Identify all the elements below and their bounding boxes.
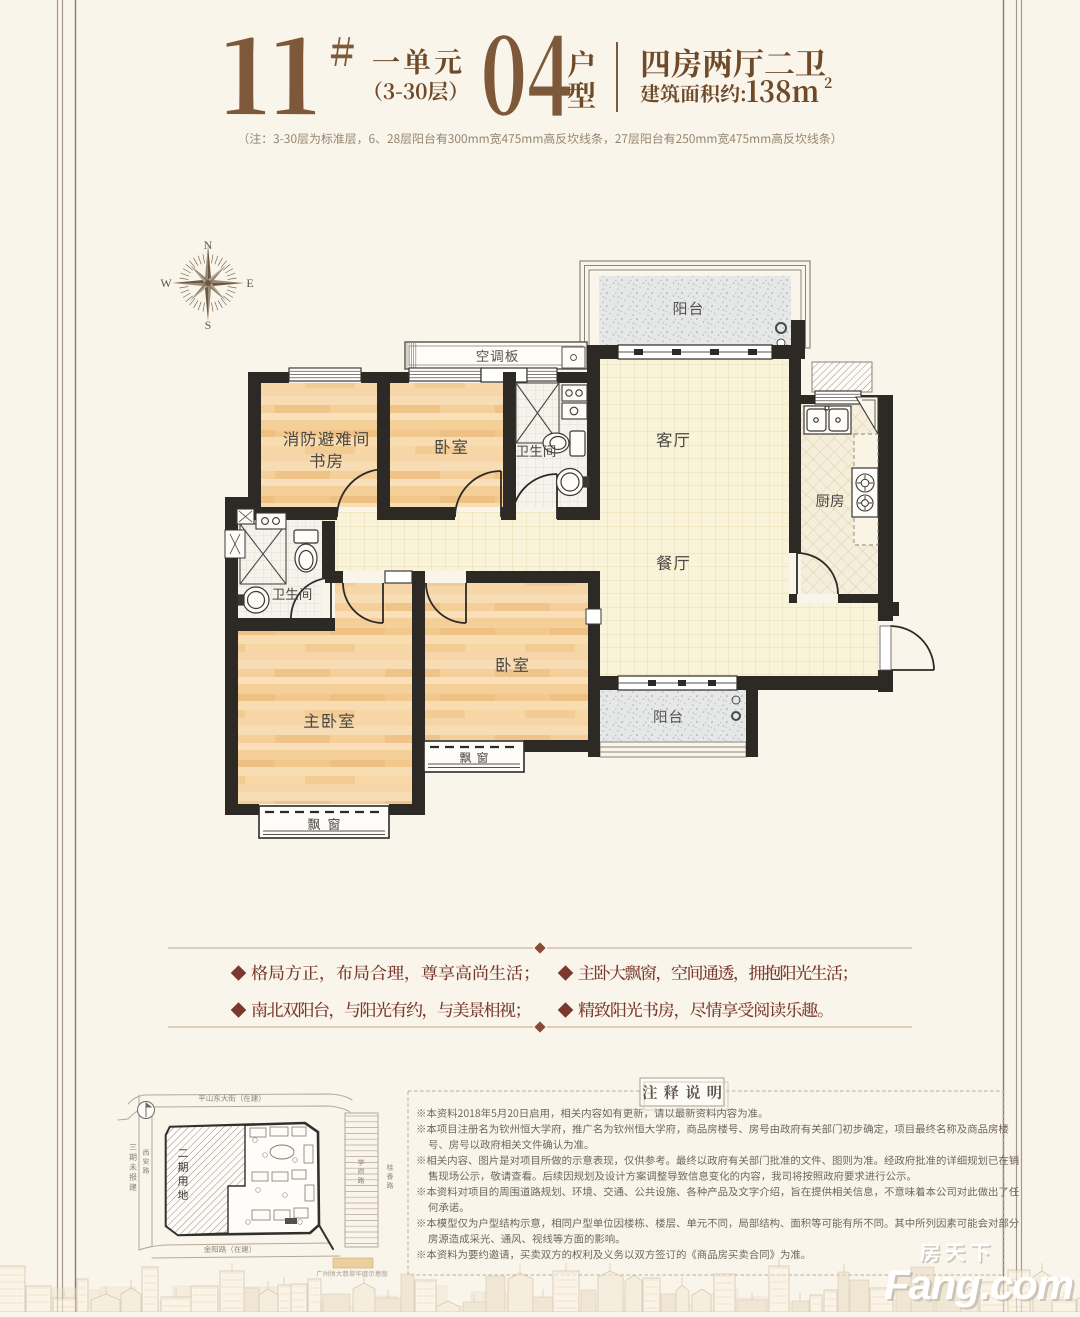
svg-text:N: N (204, 238, 213, 252)
svg-text:S: S (205, 318, 212, 332)
svg-text:Fang.com: Fang.com (884, 1261, 1073, 1308)
svg-text:E: E (246, 276, 253, 290)
svg-text:W: W (160, 276, 172, 290)
